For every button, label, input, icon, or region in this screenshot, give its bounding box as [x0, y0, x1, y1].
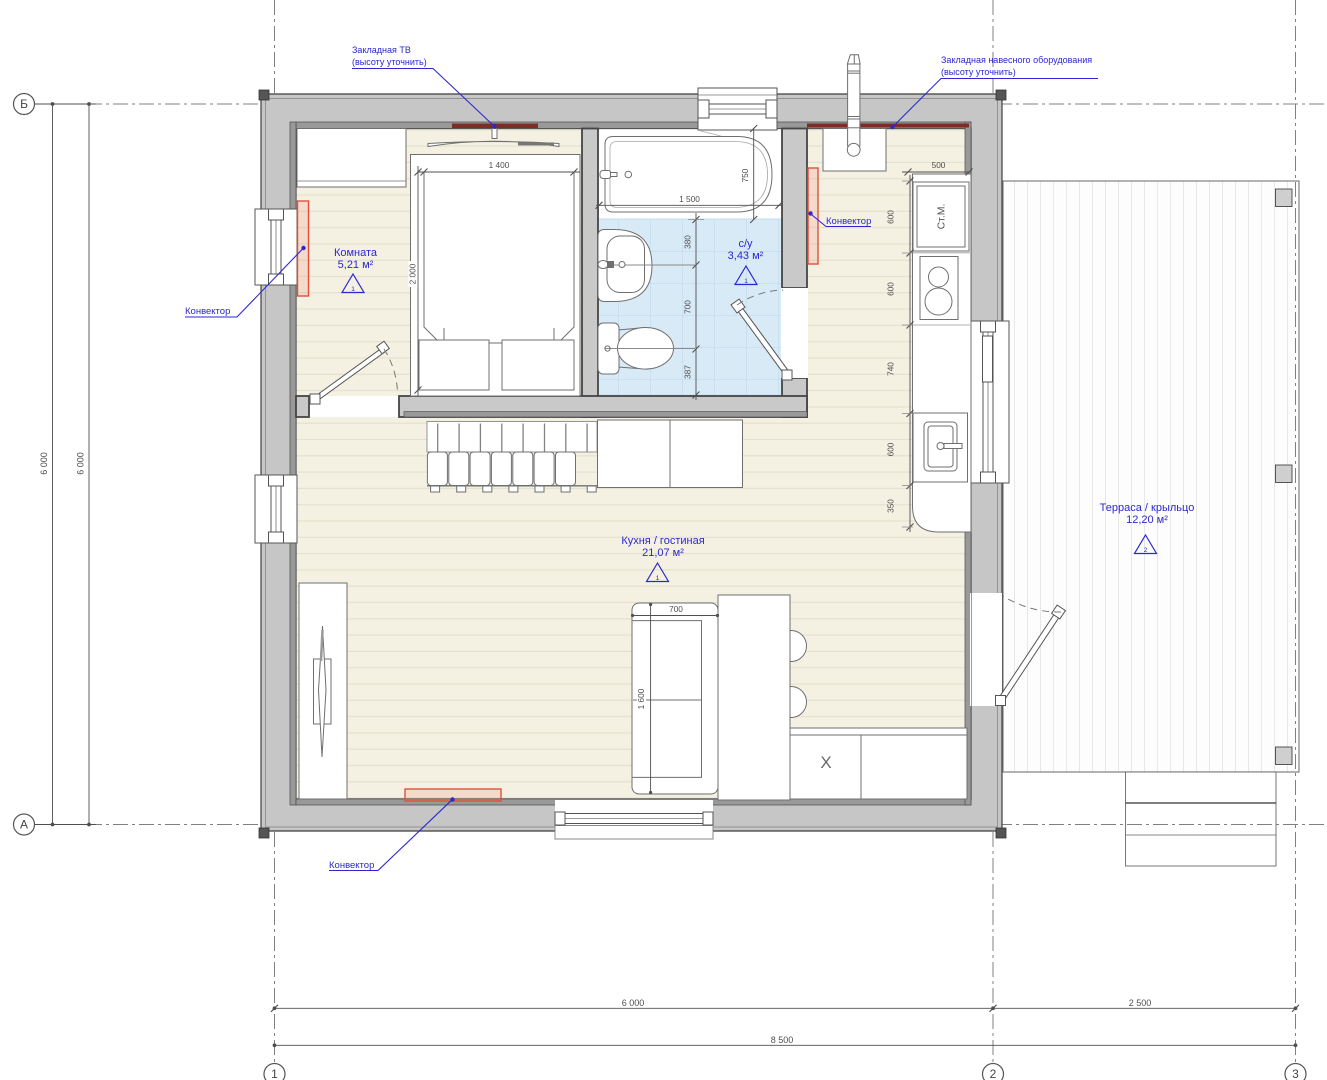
svg-text:Кухня / гостиная: Кухня / гостиная	[621, 535, 704, 547]
svg-text:1 400: 1 400	[489, 160, 510, 170]
svg-text:5,21 м²: 5,21 м²	[338, 259, 374, 271]
svg-text:Конвектор: Конвектор	[826, 216, 871, 227]
svg-text:6 000: 6 000	[39, 452, 49, 475]
svg-text:21,07 м²: 21,07 м²	[642, 547, 684, 559]
svg-text:Закладная навесного оборудован: Закладная навесного оборудования	[941, 55, 1092, 65]
svg-text:600: 600	[886, 442, 896, 456]
svg-text:500: 500	[932, 160, 946, 170]
svg-text:700: 700	[669, 604, 683, 614]
svg-text:380: 380	[683, 235, 693, 249]
svg-text:X: X	[820, 753, 831, 772]
svg-text:1: 1	[656, 575, 660, 582]
svg-text:(высоту уточнить): (высоту уточнить)	[352, 57, 427, 67]
svg-text:2 500: 2 500	[1129, 998, 1152, 1008]
svg-text:Терраса / крыльцо: Терраса / крыльцо	[1100, 502, 1195, 514]
svg-text:2: 2	[1144, 547, 1148, 554]
svg-text:Конвектор: Конвектор	[329, 860, 374, 871]
svg-text:1: 1	[744, 278, 748, 285]
svg-text:1 500: 1 500	[679, 194, 700, 204]
svg-text:600: 600	[886, 210, 896, 224]
svg-text:Закладная ТВ: Закладная ТВ	[352, 45, 411, 55]
svg-text:6 000: 6 000	[622, 998, 645, 1008]
svg-text:8 500: 8 500	[771, 1035, 794, 1045]
svg-text:(высоту уточнить): (высоту уточнить)	[941, 67, 1016, 77]
svg-text:3: 3	[1292, 1067, 1299, 1080]
svg-text:12,20 м²: 12,20 м²	[1126, 514, 1168, 526]
svg-text:3,43 м²: 3,43 м²	[728, 250, 764, 262]
svg-text:387: 387	[683, 365, 693, 379]
svg-text:Конвектор: Конвектор	[185, 306, 230, 317]
svg-text:740: 740	[886, 362, 896, 376]
svg-text:Ст.М.: Ст.М.	[936, 204, 948, 230]
svg-text:1: 1	[271, 1067, 278, 1080]
svg-text:с/у: с/у	[738, 238, 753, 250]
svg-text:2 000: 2 000	[408, 263, 418, 284]
svg-text:700: 700	[683, 300, 693, 314]
svg-text:Комната: Комната	[334, 247, 378, 259]
svg-text:600: 600	[886, 282, 896, 296]
svg-text:А: А	[20, 818, 28, 832]
svg-text:6 000: 6 000	[76, 452, 86, 475]
svg-text:350: 350	[886, 499, 896, 513]
svg-text:2: 2	[990, 1067, 997, 1080]
svg-text:Б: Б	[20, 97, 28, 111]
svg-text:750: 750	[740, 168, 750, 182]
svg-text:1 600: 1 600	[636, 688, 646, 709]
svg-text:1: 1	[351, 286, 355, 293]
